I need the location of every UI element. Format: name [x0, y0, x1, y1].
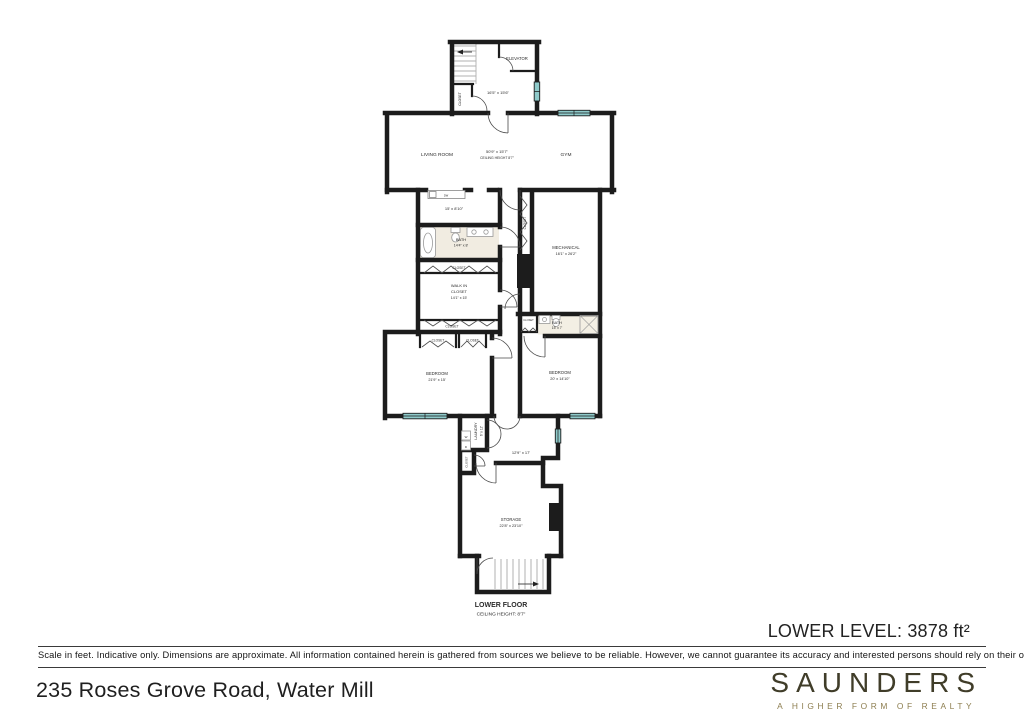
living-ceiling-label: CEILING HEIGHT 8'7" — [480, 156, 515, 160]
mech-closet-label: CLOSET — [523, 217, 527, 230]
living-room-label: LIVING ROOM — [421, 152, 453, 158]
laundry-dims-label: 6' x 12' — [480, 426, 484, 437]
bath2-closet-label: CLOSET — [523, 318, 534, 322]
upper-stairs-arrow — [457, 50, 472, 55]
walkin-line2-label: CLOSET — [451, 289, 468, 294]
laundry-label: LAUNDRY — [474, 422, 478, 440]
bar-dims-label: 15' x 8'10" — [445, 206, 464, 211]
elevator-label: ELEVATOR — [506, 56, 528, 61]
closet-strip2-label: CLOSET — [445, 325, 458, 329]
storage-dims-label: 22'8" x 23'10" — [500, 524, 524, 528]
bath2-label: BATH — [552, 321, 562, 325]
walkin-dims-label: 14'1" x 15' — [451, 296, 468, 300]
bedroom2-dims-label: 20' x 14'10" — [550, 377, 570, 381]
bath2-dims-label: 15' x 7' — [552, 326, 563, 330]
dishwasher-label: DW — [444, 194, 449, 198]
bedroom1-closet1-label: CLOSET — [432, 339, 445, 343]
brand-tagline: A HIGHER FORM OF REALTY — [770, 701, 982, 711]
bath1-dims-label: 14'4" x 8' — [454, 244, 469, 248]
floor-ceiling-label: CEILING HEIGHT: 8'7" — [477, 612, 526, 618]
floorplan-drawing: ELEVATOR CLOSET 16'5" x 15'6" LIVING ROO… — [0, 0, 1024, 724]
living-dims-label: 50'9" x 15'7" — [486, 149, 509, 154]
lower-stairs-arrow — [518, 582, 539, 587]
entry-dims-label: 16'5" x 15'6" — [487, 90, 510, 95]
hall-closet-label: CLOSET — [465, 456, 469, 467]
equipment-boxes — [517, 254, 561, 531]
upper-closet-label: CLOSET — [458, 92, 462, 106]
washer-label: W — [465, 435, 468, 439]
bedroom1-dims-label: 21'9" x 15' — [428, 378, 446, 382]
bath-floor-fills — [419, 226, 598, 335]
bedroom1-label: BEDROOM — [426, 371, 448, 376]
storage-label: STORAGE — [501, 517, 522, 522]
gym-label: GYM — [561, 152, 572, 158]
brand-name: SAUNDERS — [770, 669, 982, 697]
hall-dims-label: 12'9" x 17' — [512, 450, 531, 455]
floor-label: LOWER FLOOR — [475, 602, 528, 609]
mechanical-label: MECHANICAL — [552, 245, 580, 250]
bath1-label: BATH — [456, 237, 466, 242]
level-area-label: LOWER LEVEL: 3878 ft² — [768, 621, 970, 642]
upper-stairs — [453, 44, 476, 84]
floorplan-page: ELEVATOR CLOSET 16'5" x 15'6" LIVING ROO… — [0, 0, 1024, 724]
bedroom2-label: BEDROOM — [549, 370, 571, 375]
bedroom1-closet2-label: CLOSET — [466, 339, 479, 343]
property-address: 235 Roses Grove Road, Water Mill — [36, 678, 374, 703]
closet-strip1-label: CLOSET — [452, 266, 465, 270]
disclaimer-text: Scale in feet. Indicative only. Dimensio… — [38, 650, 986, 660]
walkin-line1-label: WALK IN — [451, 283, 467, 288]
divider-line-top — [38, 646, 986, 647]
mechanical-dims-label: 16'1" x 26'2" — [556, 252, 577, 256]
saunders-logo: SAUNDERS A HIGHER FORM OF REALTY — [770, 669, 982, 711]
